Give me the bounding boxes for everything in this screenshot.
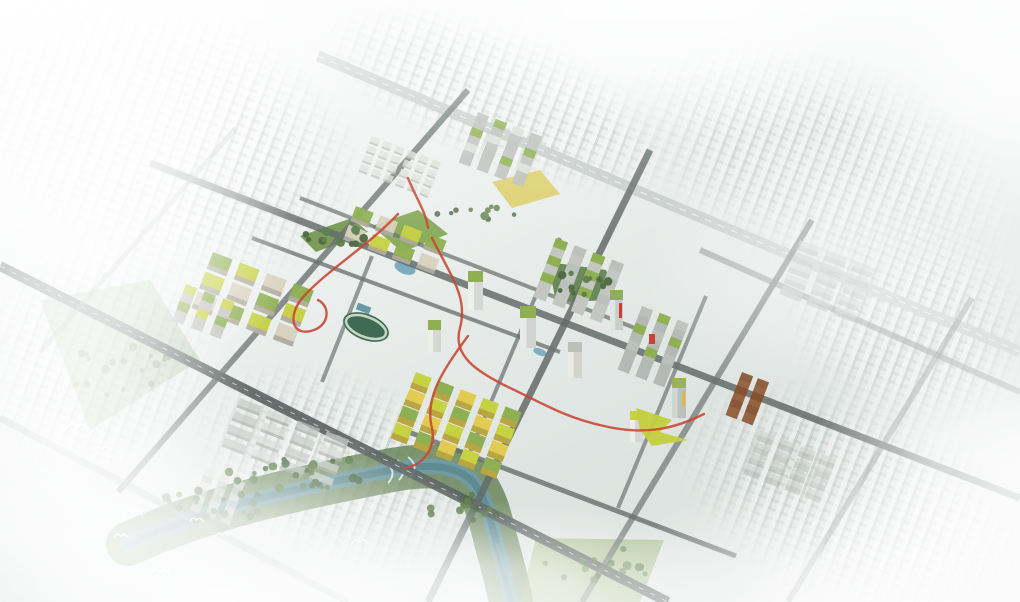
trees-layer [73, 204, 647, 583]
bird-2 [94, 447, 111, 451]
south-park-trees [543, 546, 648, 583]
street-a2 [300, 198, 640, 330]
tower-red-sign [610, 290, 623, 330]
cross-street-center [428, 150, 650, 602]
tower-2 [520, 306, 536, 348]
ring-road-right [700, 250, 1020, 392]
river-forest-mid [162, 487, 261, 525]
north-belt-trees [434, 204, 516, 221]
cloud-bottom-right [580, 470, 1020, 602]
flying-birds [36, 424, 369, 575]
cbd-courtyard-park [548, 262, 616, 302]
bird-4 [124, 510, 143, 515]
river-layer [128, 457, 516, 602]
cloud-bottom-center [230, 500, 750, 602]
cloud-top-right [820, 0, 1020, 240]
red-path-north [408, 178, 428, 228]
tower-1 [468, 271, 483, 310]
tower-colorful [672, 378, 686, 418]
cloud-left-upper [0, 60, 300, 420]
river [128, 466, 511, 602]
cloud-center-right-haze [640, 120, 1020, 420]
distant-city-texture-top-left [0, 0, 418, 347]
street-b2 [618, 296, 706, 508]
main-avenue-dash [0, 266, 668, 602]
red-path-spine [432, 238, 704, 430]
bird-8 [216, 533, 229, 536]
roads-layer [0, 56, 1020, 602]
bird-11 [36, 470, 49, 473]
pond [393, 258, 418, 277]
red-path-river-branch [406, 336, 468, 468]
river-deep-channel [128, 466, 511, 602]
cloud-left [0, 240, 260, 602]
bird-3 [107, 456, 120, 459]
distant-city-texture-top-center [287, 0, 733, 245]
cross-street-west [118, 90, 468, 492]
south-stream [497, 545, 516, 602]
arterial-north [150, 163, 1020, 498]
river-forest-west [225, 456, 363, 493]
distant-city-texture-bottom-left [149, 313, 531, 602]
cbd-east [618, 306, 689, 387]
southeast-residential-rows [743, 430, 836, 503]
main-avenue [0, 266, 668, 602]
elevated-highway [318, 56, 1020, 352]
warehouse-rows [221, 398, 349, 488]
towers-north [459, 112, 543, 187]
red-pedestrian-ribbons [293, 178, 704, 468]
building-clusters-layer [172, 112, 875, 525]
deco-layer [636, 334, 688, 446]
masterplan-scene [0, 0, 1020, 602]
old-town-fabric [358, 136, 441, 198]
parks-layer [40, 170, 664, 602]
distant-city-texture-top-right [573, 0, 1020, 351]
highway-centerline [318, 56, 1020, 352]
orange-quarter [726, 372, 770, 425]
weir-1 [386, 463, 393, 483]
tower-5 [630, 411, 643, 442]
yellow-plaza [492, 170, 560, 208]
river-bank-east [427, 492, 500, 523]
east-residential-rows [779, 240, 874, 323]
cbd-core [533, 238, 624, 323]
aerial-masterplan-rendering [0, 0, 1020, 602]
north-tree-belt [300, 218, 368, 252]
bird-7 [190, 518, 204, 522]
bird-5 [114, 534, 129, 538]
south-park [520, 538, 664, 602]
cloud-top-left [0, 0, 360, 280]
cloud-top-center [420, 0, 940, 140]
red-path-west-loop [293, 214, 398, 332]
bottom-left-road [0, 418, 348, 602]
west-hill-trees [73, 343, 171, 398]
stadium-track [339, 300, 396, 348]
campus-green-trees [303, 226, 368, 248]
bird-10 [352, 540, 369, 544]
bird-6 [150, 570, 171, 575]
water-plaza [532, 346, 548, 358]
distant-city-texture-right [742, 164, 1020, 480]
stadium-track [339, 300, 396, 348]
cross-street-far-east [788, 298, 972, 602]
cloud-right [800, 320, 1020, 602]
red-billboard [649, 334, 655, 344]
creative-yellow-quarter [391, 372, 522, 479]
riverside-forest-band [128, 466, 511, 602]
green-ribbon-structure [636, 408, 688, 446]
bird-9 [230, 561, 245, 565]
cloud-bottom-left [0, 420, 520, 602]
cross-street-east [582, 220, 812, 602]
campus-west [191, 252, 313, 347]
west-hillside-green [40, 280, 200, 430]
landmark-towers-layer [428, 271, 686, 442]
west-road-faded [40, 128, 236, 352]
distant-city-texture-bottom-right [628, 323, 1020, 602]
weir-2 [397, 460, 404, 480]
weir-3 [408, 457, 415, 477]
cbd-park-trees [558, 271, 613, 297]
atmospheric-haze [0, 0, 1020, 602]
towers-west [172, 284, 235, 339]
campus-mid [343, 206, 446, 274]
bird-1 [66, 424, 89, 430]
street-b1 [470, 238, 560, 452]
street-a1 [252, 238, 560, 352]
street-a3 [398, 428, 736, 556]
tower-6 [428, 320, 441, 352]
distant-city-texture-left [0, 189, 260, 531]
tower-3 [568, 342, 582, 378]
central-park-lawn [372, 210, 448, 252]
south-white-estate [190, 468, 245, 525]
street-b3 [322, 256, 372, 382]
